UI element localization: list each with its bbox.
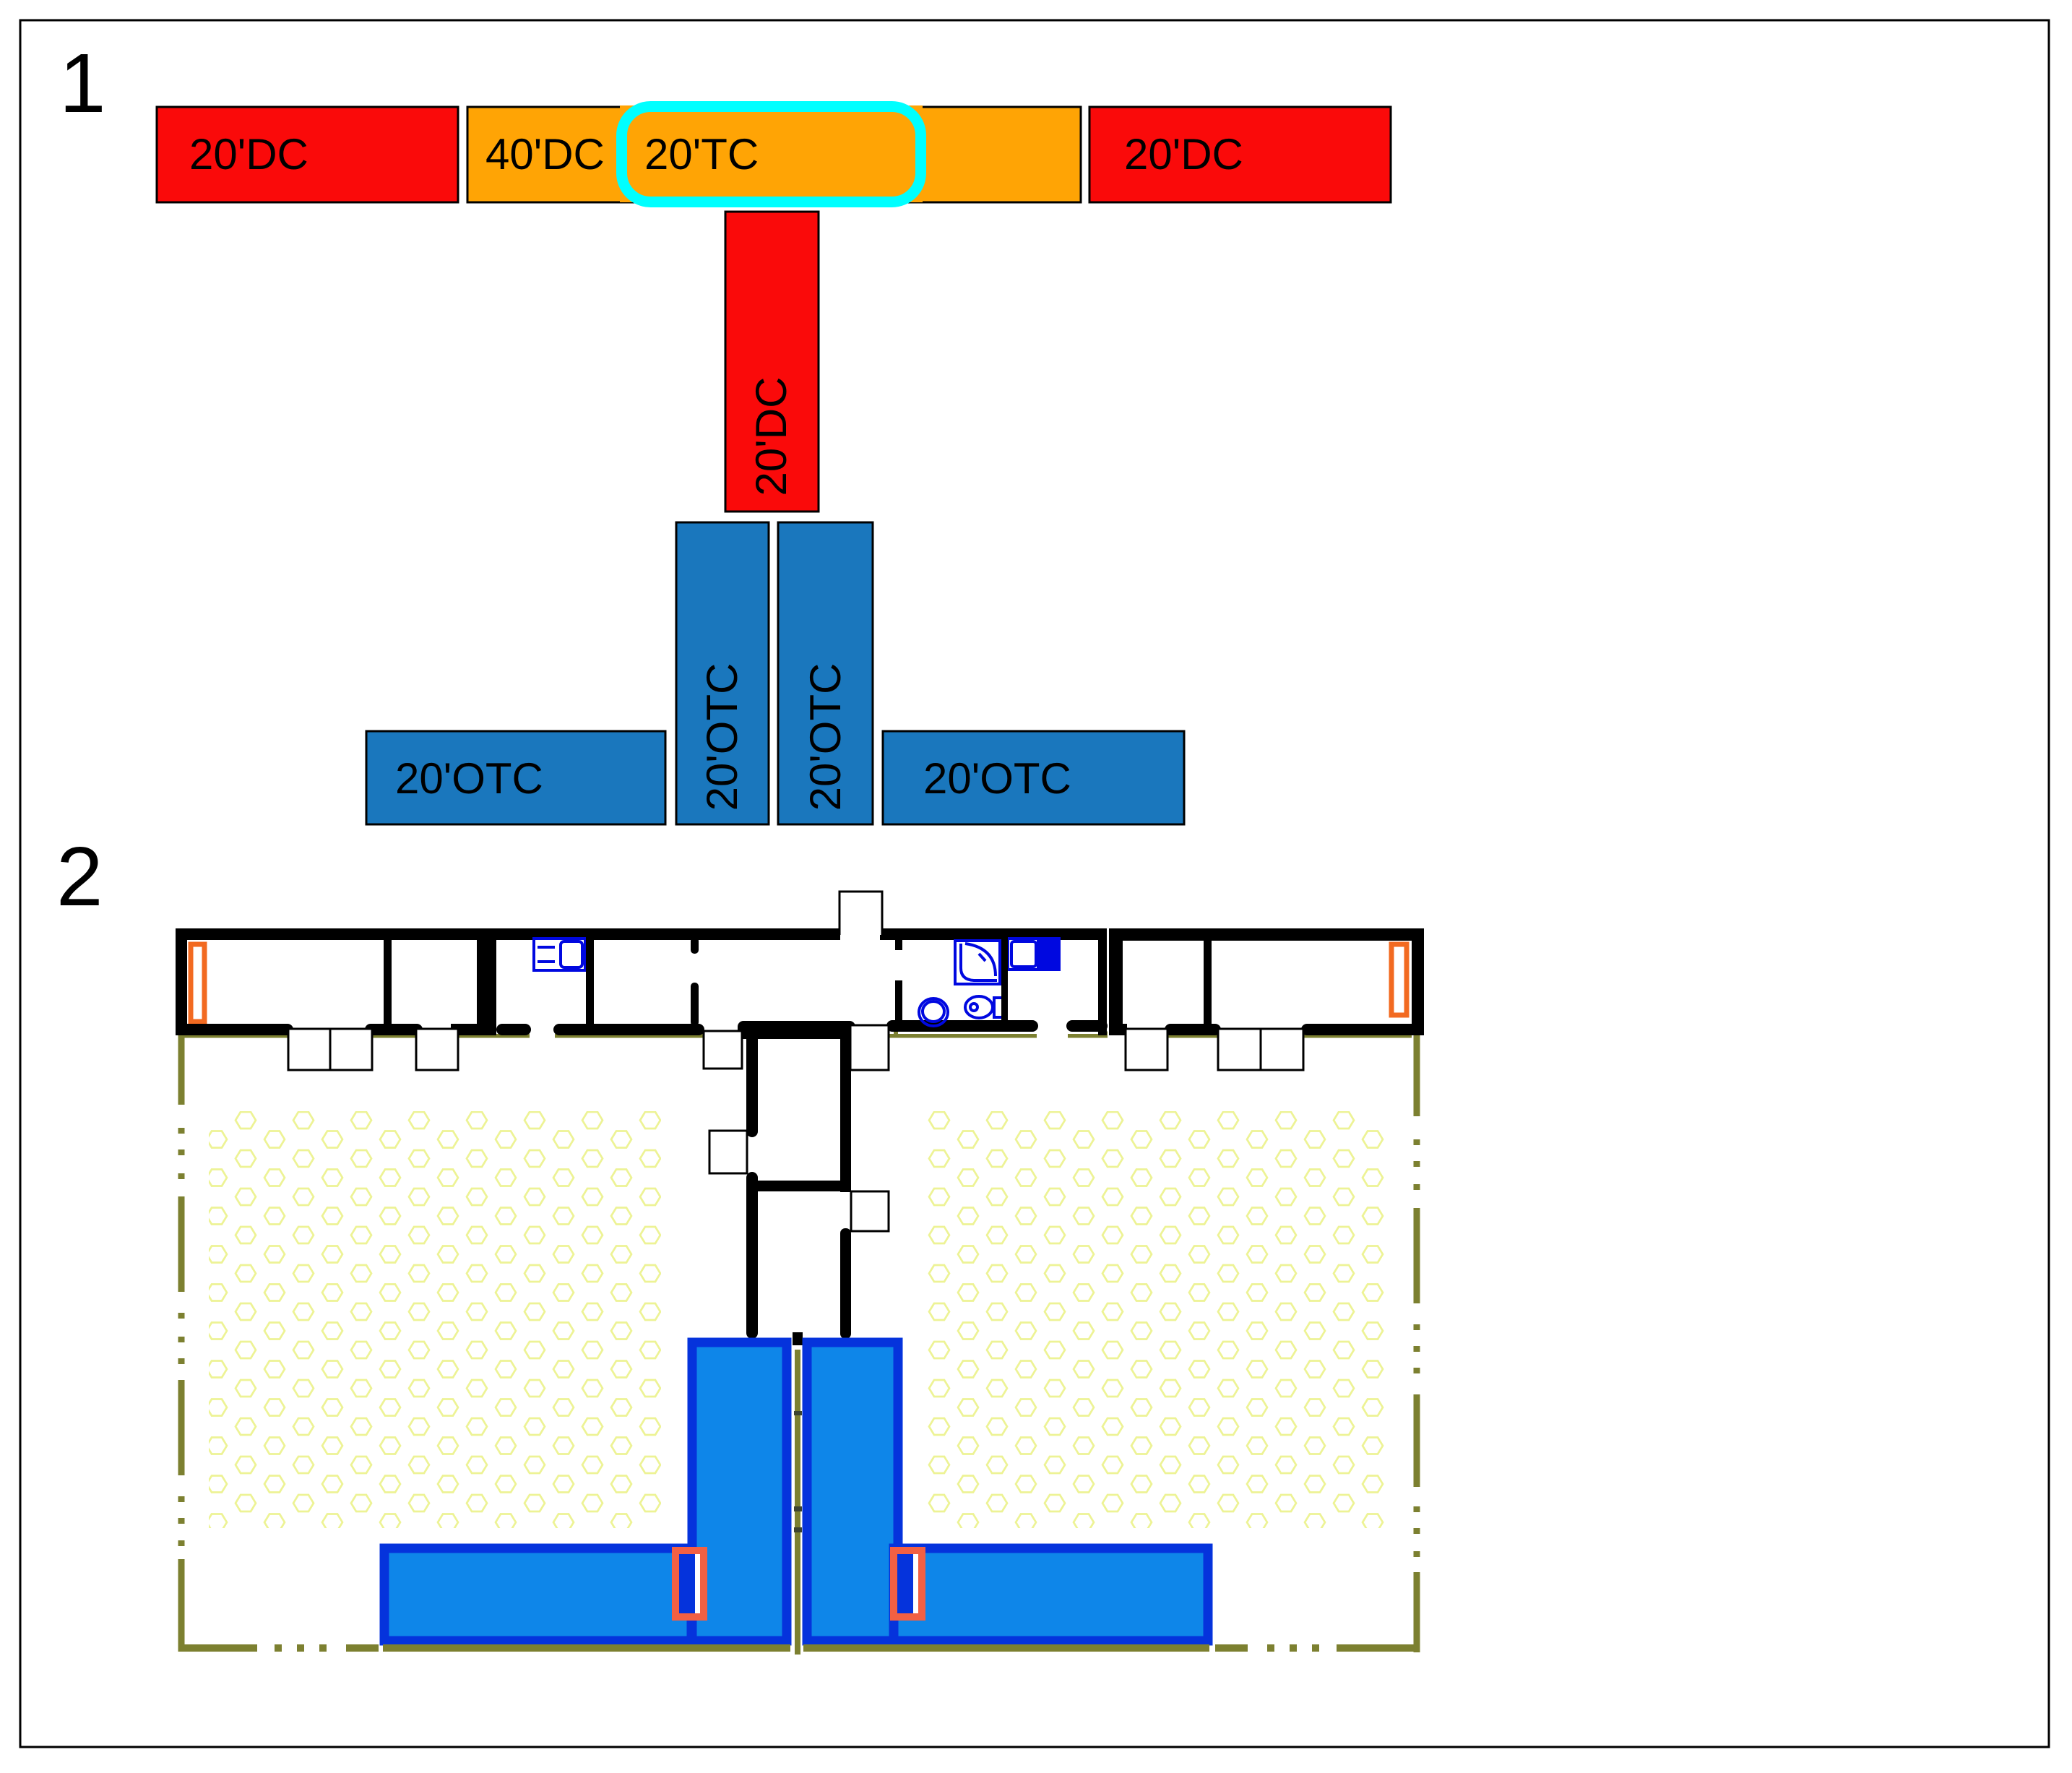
svg-text:20'OTC: 20'OTC <box>698 663 746 811</box>
svg-text:20'DC: 20'DC <box>1124 130 1243 178</box>
svg-text:20'OTC: 20'OTC <box>801 663 850 811</box>
svg-text:20'TC: 20'TC <box>644 130 759 178</box>
svg-text:40'DC: 40'DC <box>485 130 605 178</box>
svg-text:20'DC: 20'DC <box>189 130 308 178</box>
svg-text:2: 2 <box>56 829 103 923</box>
svg-text:1: 1 <box>59 36 106 130</box>
svg-text:20'OTC: 20'OTC <box>923 754 1071 803</box>
svg-text:20'DC: 20'DC <box>747 377 795 496</box>
svg-text:20'OTC: 20'OTC <box>395 754 543 803</box>
